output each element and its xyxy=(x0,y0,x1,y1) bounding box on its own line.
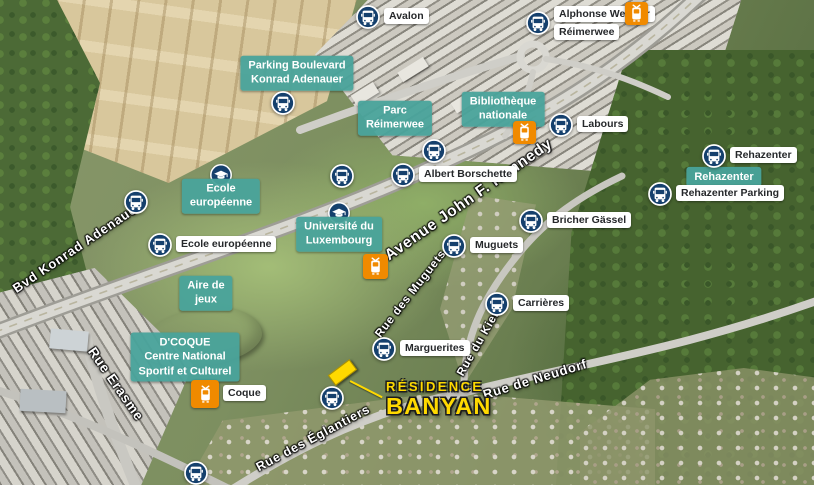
bus-icon xyxy=(330,164,354,188)
stop-label: Carrières xyxy=(513,295,569,311)
stop-label-group: Labours xyxy=(577,116,628,132)
bus-icon xyxy=(526,11,550,35)
residence-label-line2: BANYAN xyxy=(386,393,492,420)
stop-label-group: Avalon xyxy=(384,8,429,24)
stop-label: Bricher Gässel xyxy=(547,212,631,228)
bus-icon xyxy=(422,139,446,163)
bus-icon xyxy=(648,182,672,206)
tram-icon xyxy=(363,254,388,279)
stop-label: Albert Borschette xyxy=(419,166,517,182)
stop-label-group: Bricher Gässel xyxy=(547,212,631,228)
stop-label: Labours xyxy=(577,116,628,132)
stop-label-group: Coque xyxy=(223,385,266,401)
bus-icon xyxy=(485,292,509,316)
stop-label-group: Carrières xyxy=(513,295,569,311)
stop-label: Rehazenter xyxy=(730,147,797,163)
stop-label-group: Muguets xyxy=(470,237,523,253)
satellite-map: Avenue John F. KennedyBvd Konrad Adenaue… xyxy=(0,0,814,485)
bus-icon xyxy=(271,91,295,115)
stop-label: Ecole européenne xyxy=(176,236,276,252)
stop-label: Rehazenter Parking xyxy=(676,185,784,201)
bus-icon xyxy=(442,234,466,258)
bus-icon xyxy=(124,190,148,214)
stop-label-line2: Réimerwee xyxy=(554,24,619,40)
stop-label-group: Albert Borschette xyxy=(419,166,517,182)
residence-label: RÉSIDENCE BANYAN xyxy=(386,379,492,420)
stop-label: Coque xyxy=(223,385,266,401)
stop-label: Marguerites xyxy=(400,340,470,356)
bus-icon xyxy=(391,163,415,187)
bus-icon xyxy=(519,209,543,233)
bus-icon xyxy=(702,144,726,168)
stop-label-group: Rehazenter xyxy=(730,147,797,163)
bus-icon xyxy=(148,233,172,257)
stop-label: Muguets xyxy=(470,237,523,253)
stop-label-group: Ecole européenne xyxy=(176,236,276,252)
bus-icon xyxy=(549,113,573,137)
bus-icon xyxy=(184,461,208,485)
bus-icon xyxy=(320,386,344,410)
tram-icon xyxy=(191,380,219,408)
bus-icon xyxy=(356,5,380,29)
stop-label-group: Rehazenter Parking xyxy=(676,185,784,201)
stop-label: Avalon xyxy=(384,8,429,24)
residence-label-line1: RÉSIDENCE xyxy=(386,379,492,394)
stop-label-group: Marguerites xyxy=(400,340,470,356)
bus-icon xyxy=(372,337,396,361)
tram-icon xyxy=(625,2,648,25)
tram-icon xyxy=(513,121,536,144)
